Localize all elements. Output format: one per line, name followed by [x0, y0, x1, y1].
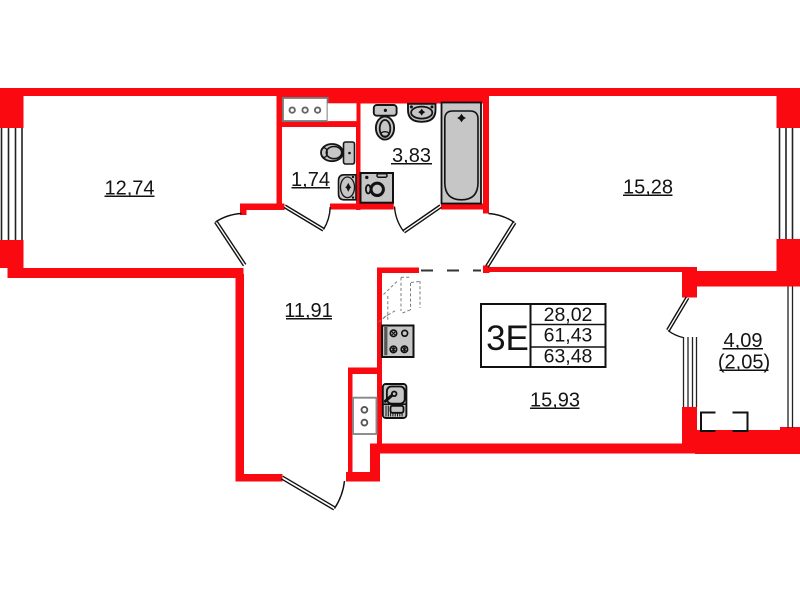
svg-text:3Е: 3Е	[486, 319, 529, 358]
svg-text:28,02: 28,02	[544, 304, 593, 326]
svg-text:61,43: 61,43	[544, 325, 593, 347]
svg-text:63,48: 63,48	[544, 346, 593, 368]
